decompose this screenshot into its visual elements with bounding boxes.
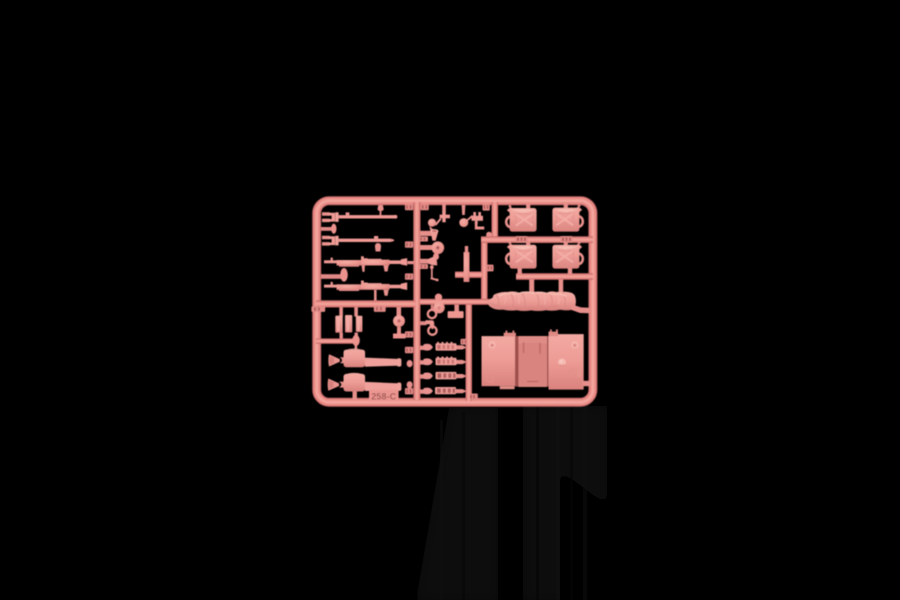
svg-text:258-C: 258-C (371, 392, 396, 402)
